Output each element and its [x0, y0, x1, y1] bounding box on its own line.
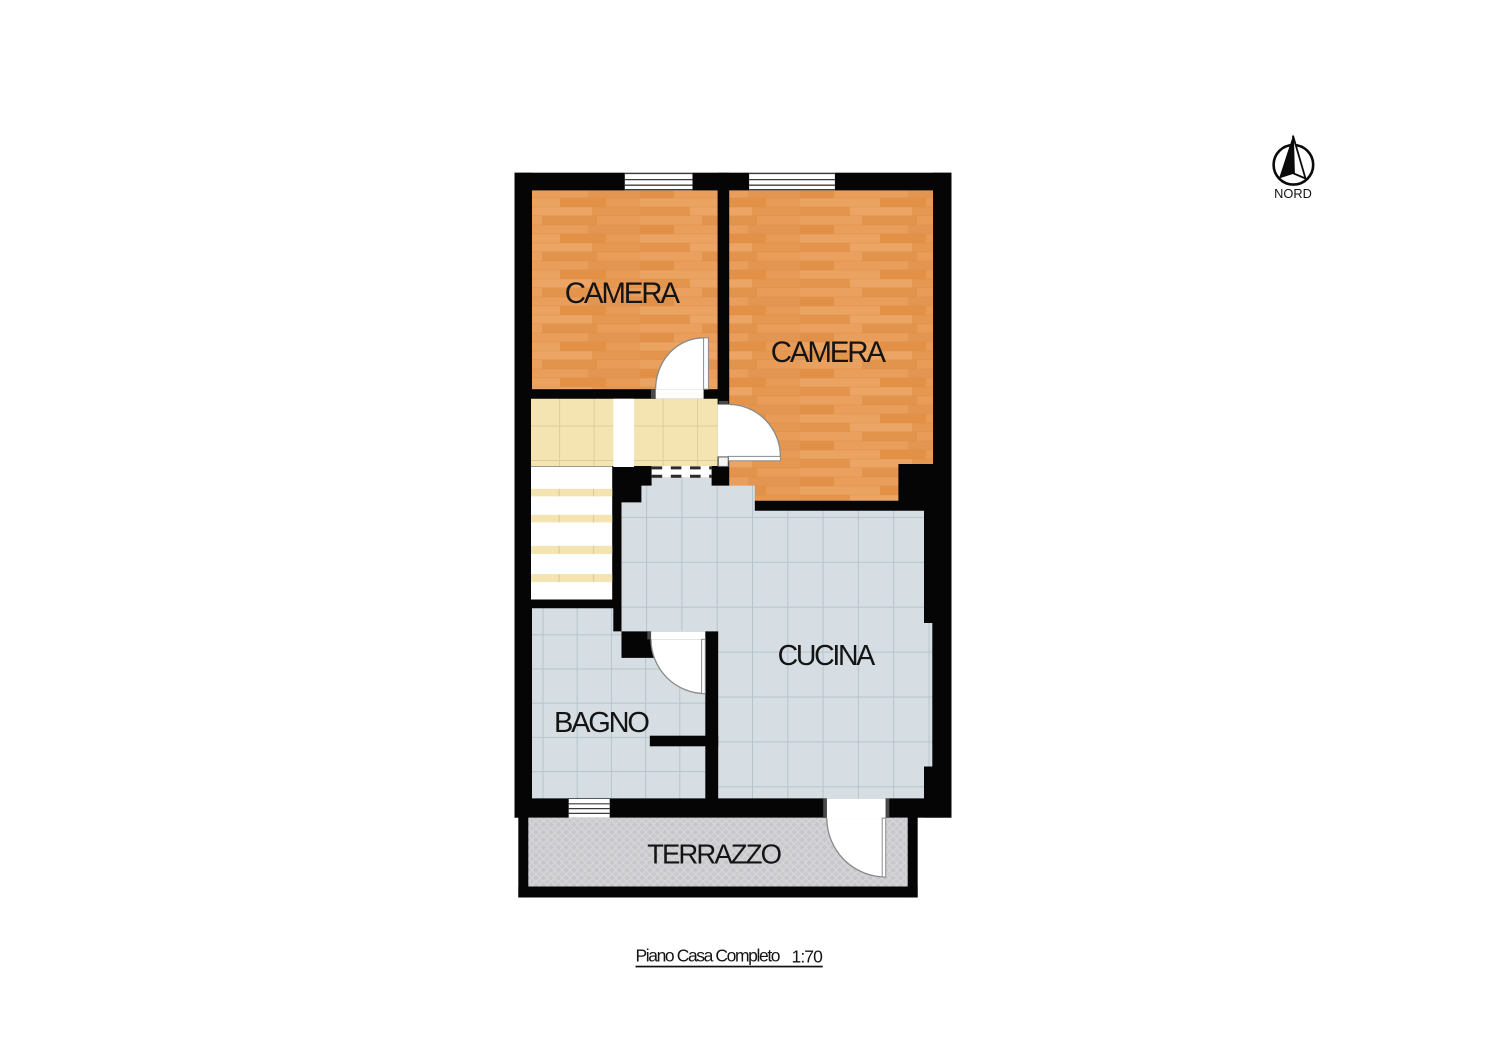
svg-text:1:70: 1:70 [792, 947, 824, 967]
svg-text:CAMERA: CAMERA [565, 277, 681, 310]
svg-text:CUCINA: CUCINA [778, 640, 876, 672]
svg-text:BAGNO: BAGNO [554, 707, 649, 739]
svg-text:TERRAZZO: TERRAZZO [647, 839, 781, 870]
svg-text:NORD: NORD [1274, 186, 1312, 201]
svg-text:CAMERA: CAMERA [771, 336, 887, 369]
svg-text:Piano Casa Completo: Piano Casa Completo [636, 945, 780, 965]
